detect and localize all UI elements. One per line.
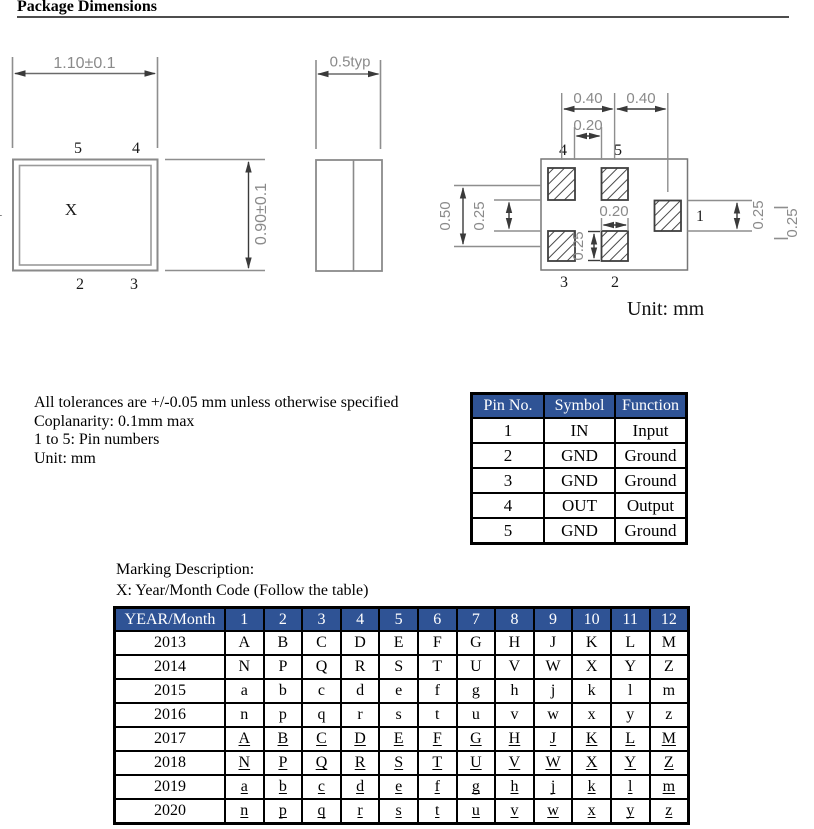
svg-text:1: 1 [0,203,3,220]
svg-text:0.25: 0.25 [570,231,587,260]
svg-text:0.20: 0.20 [599,203,628,220]
svg-text:0.20: 0.20 [573,117,602,134]
svg-text:0.40: 0.40 [626,90,655,107]
svg-text:4: 4 [132,140,140,157]
svg-text:1: 1 [696,208,704,225]
svg-text:0.90±0.1: 0.90±0.1 [253,183,270,245]
svg-text:5: 5 [74,140,82,157]
svg-text:3: 3 [560,274,568,291]
svg-text:2: 2 [76,276,84,293]
svg-text:0.5typ: 0.5typ [330,54,371,71]
svg-text:4: 4 [559,142,567,159]
svg-text:0.25: 0.25 [471,201,488,230]
svg-text:1.10±0.1: 1.10±0.1 [53,55,115,72]
svg-text:0.40: 0.40 [573,90,602,107]
svg-text:2: 2 [611,274,619,291]
svg-text:0.50: 0.50 [437,201,454,230]
svg-text:3: 3 [130,276,138,293]
svg-text:X: X [65,200,77,219]
svg-text:0.25: 0.25 [784,208,801,237]
svg-text:0.25: 0.25 [750,200,767,229]
